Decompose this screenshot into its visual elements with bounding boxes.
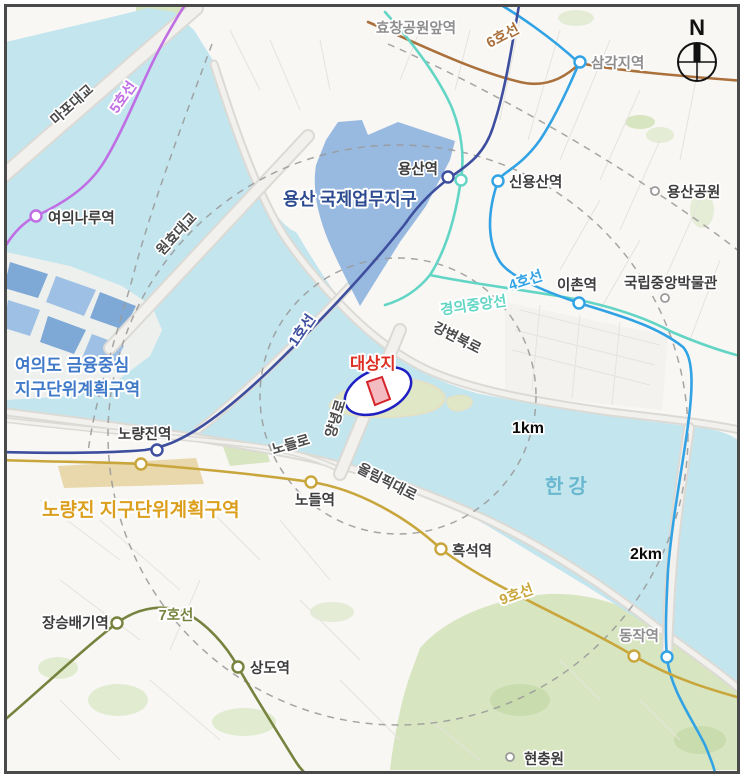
station-noryangjin-marker [152,445,163,456]
label-station-dongjak: 동작역 [619,627,659,645]
station-dongjak-line4-marker [662,652,673,663]
label-station-noryangjin: 노량진역 [118,425,171,443]
label-han-river: 한강 [545,475,592,498]
station-yongsan-marker [443,172,454,183]
badge-line7: 7호선 [159,607,194,624]
poi-museum-marker [661,294,669,302]
poi-hyeonchungwon-marker [506,753,514,761]
station-ichon-marker [574,298,585,309]
label-station-jangseungbaegi: 장승배기역 [42,614,109,632]
station-yongsan-marker-2 [456,175,467,186]
label-station-yongsan: 용산역 [398,161,438,178]
label-1km: 1km [512,420,544,437]
compass-needle-icon [694,43,701,62]
station-samgakji-marker [575,57,586,68]
compass-north-label: N [689,15,705,40]
label-station-sinyongsan: 신용산역 [509,174,562,191]
poi-yongsan-park-marker [651,187,659,195]
label-station-heukseok: 흑석역 [452,542,492,560]
station-yeouinaru-marker [31,211,42,222]
station-nodeul-marker [306,477,317,488]
station-heukseok-marker [436,544,447,555]
label-poi-yongsan-park: 용산공원 [667,184,720,201]
label-district-noryangjin: 노량진 지구단위계획구역 [42,499,240,521]
map-canvas: 마포대교 원효대교 강변북로 양녕로 노들로 올림픽대로 5호선 6호선 4호선… [0,0,744,778]
label-station-nodeul: 노들역 [295,492,335,509]
label-poi-hyeonchungwon: 현충원 [524,751,564,768]
label-district-yongsan-ibd: 용산 국제업무지구 [283,189,417,209]
station-noryangjin-line9-marker [136,459,147,470]
label-target-site: 대상지 [350,354,396,373]
label-poi-museum: 국립중앙박물관 [624,274,718,292]
station-sangdo-marker [233,662,244,673]
station-jangseungbaegi-marker [112,618,123,629]
label-station-samgakji: 삼각지역 [591,54,644,72]
label-station-hyochang: 효창공원앞역 [376,19,456,37]
station-sinyongsan-marker [493,176,504,187]
label-station-ichon: 이촌역 [557,277,597,294]
label-station-yeouinaru: 여의나루역 [48,209,115,227]
label-district-yeouido-line2: 지구단위계획구역 [15,380,140,399]
label-2km: 2km [630,546,662,563]
station-dongjak-marker [629,651,640,662]
map-page: 마포대교 원효대교 강변북로 양녕로 노들로 올림픽대로 5호선 6호선 4호선… [0,0,744,778]
label-district-yeouido-line1: 여의도 금융중심 [15,356,129,375]
label-station-sangdo: 상도역 [250,660,290,677]
